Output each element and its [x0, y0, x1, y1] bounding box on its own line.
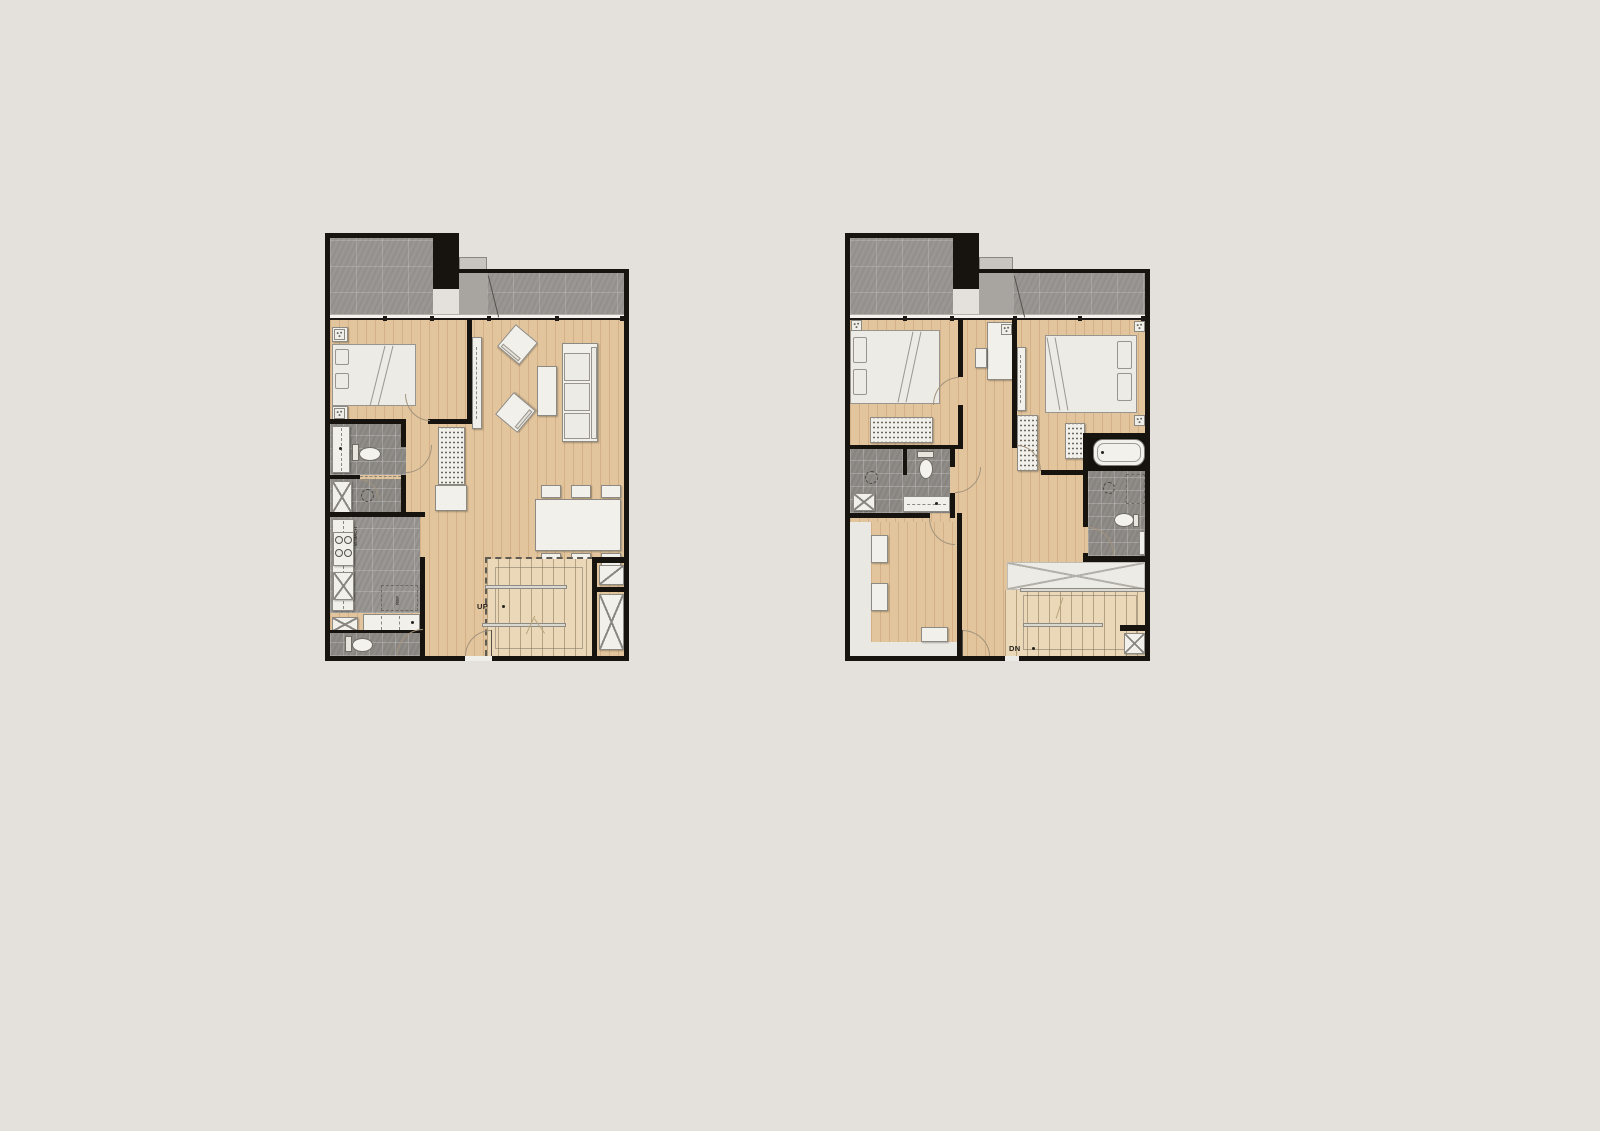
- wall: [330, 419, 405, 424]
- cabinet: [435, 485, 467, 511]
- pantry-line: [399, 616, 400, 630]
- wall: [330, 512, 425, 517]
- shaft-x: [1124, 633, 1145, 654]
- tv-console-line: [1020, 355, 1021, 403]
- wall: [953, 235, 979, 289]
- wall: [330, 475, 360, 479]
- pillow: [335, 349, 349, 365]
- upper-floor-plan: DN: [845, 227, 1155, 665]
- closet-cabinet: [871, 535, 888, 563]
- stair-rail: [485, 585, 567, 589]
- tv-console: [472, 337, 482, 429]
- toilet-icon: [1114, 513, 1134, 527]
- window-line: [330, 318, 624, 320]
- window-mullion: [620, 316, 624, 321]
- sofa-back: [591, 347, 597, 439]
- window-mullion: [430, 316, 434, 321]
- wall: [958, 319, 963, 377]
- pillow: [1117, 341, 1132, 369]
- stair-marker-dot: [502, 605, 505, 608]
- stair-rail: [1020, 588, 1145, 592]
- shaft-x: [332, 481, 352, 513]
- window-mullion: [1141, 316, 1145, 321]
- tv-console-line: [476, 347, 477, 419]
- window-mullion: [487, 316, 491, 321]
- faucet-dot: [339, 447, 342, 450]
- wall: [850, 445, 958, 449]
- wardrobe-cabinet: [975, 348, 987, 368]
- shower-glass: [904, 475, 905, 495]
- wall: [592, 563, 597, 656]
- wall: [850, 513, 930, 518]
- dining-chair: [541, 485, 561, 498]
- wall: [1012, 319, 1017, 448]
- shower-icon: [1103, 482, 1115, 494]
- window-mullion: [555, 316, 559, 321]
- pantry-line: [381, 616, 382, 630]
- closet-cabinet: [871, 583, 888, 611]
- toilet-icon: [352, 444, 359, 461]
- pillow: [853, 369, 867, 395]
- entry-vestibule: [459, 273, 487, 319]
- vanity-line: [907, 504, 946, 505]
- sofa-cushion: [564, 383, 590, 411]
- fridge-label: REF: [396, 591, 401, 605]
- plant-icon: [851, 320, 862, 331]
- lower-floor-plan: W.MACH REF UP: [325, 227, 633, 665]
- wall: [1041, 470, 1088, 475]
- dining-table: [535, 499, 621, 551]
- stove-burner: [344, 536, 352, 544]
- dining-chair: [571, 485, 591, 498]
- stove-burner: [335, 549, 343, 557]
- plant-icon: [1134, 415, 1145, 426]
- toilet-icon: [352, 638, 373, 652]
- stair-marker-dot: [1032, 647, 1035, 650]
- wall: [1145, 269, 1150, 661]
- wall: [979, 269, 1150, 273]
- wall: [950, 493, 955, 518]
- window-mullion: [903, 316, 907, 321]
- window-mullion: [950, 316, 954, 321]
- shoe-cabinet: [438, 427, 465, 485]
- balcony-floor: [1013, 273, 1145, 319]
- washing-machine-label: W.MACH: [354, 518, 359, 546]
- shaft-x: [599, 594, 624, 650]
- toilet-icon: [917, 451, 934, 458]
- tv-console: [1017, 347, 1026, 411]
- wall: [428, 419, 472, 424]
- coffee-table: [537, 366, 557, 416]
- faucet-dot: [411, 621, 414, 624]
- wall: [325, 233, 330, 661]
- dresser: [870, 417, 933, 443]
- door-leaf: [962, 630, 963, 656]
- plant-icon: [1134, 321, 1145, 332]
- shower-glass: [360, 476, 401, 478]
- closet-cabinet: [921, 627, 948, 642]
- balcony-floor: [330, 237, 433, 319]
- window-mullion: [383, 316, 387, 321]
- sofa-cushion: [564, 353, 590, 381]
- pillow: [853, 337, 867, 363]
- shower-glass: [1126, 474, 1145, 504]
- shaft-x: [853, 493, 875, 511]
- wall: [1083, 433, 1150, 438]
- bathtub-drain: [1101, 451, 1104, 454]
- stair-rail: [482, 623, 566, 627]
- shaft-x: [599, 565, 624, 585]
- entry-vestibule: [979, 273, 1013, 319]
- wall: [950, 449, 955, 467]
- sink-icon: [333, 572, 354, 600]
- pillow: [1117, 373, 1132, 401]
- toilet-icon: [359, 447, 381, 461]
- stove-burner: [335, 536, 343, 544]
- wall: [624, 269, 629, 661]
- toilet-icon: [919, 459, 933, 479]
- door-leaf: [491, 630, 492, 656]
- window-line: [850, 318, 1145, 320]
- console-cabinet: [1065, 423, 1085, 459]
- entry-threshold: [465, 656, 492, 661]
- wall: [845, 656, 1150, 661]
- wall: [459, 269, 629, 273]
- wall: [401, 475, 406, 515]
- dining-chair: [601, 485, 621, 498]
- toilet-icon: [345, 636, 352, 652]
- dn-label: DN: [1009, 645, 1020, 653]
- wall: [433, 235, 459, 289]
- stair-opening: [1005, 656, 1019, 661]
- window-mullion: [1078, 316, 1082, 321]
- shower-icon: [865, 471, 878, 484]
- pillow: [335, 373, 349, 389]
- sofa-cushion: [564, 413, 590, 439]
- wall: [1083, 433, 1088, 527]
- void-x: [1007, 562, 1145, 590]
- wall: [1083, 556, 1150, 562]
- balcony-floor: [850, 237, 953, 319]
- stair-outline: [495, 567, 583, 649]
- plant-icon: [334, 408, 345, 419]
- wall: [467, 319, 472, 419]
- wall: [401, 419, 406, 447]
- plant-icon: [1001, 324, 1012, 335]
- wall: [958, 405, 963, 449]
- up-label: UP: [477, 603, 488, 611]
- wall: [903, 449, 907, 475]
- stove-burner: [344, 549, 352, 557]
- stair-rail: [1023, 623, 1103, 627]
- plant-icon: [334, 329, 345, 340]
- balcony-floor: [487, 273, 624, 319]
- faucet-dot: [935, 502, 938, 505]
- page-background: { "canvas": {"width": 1600, "height": 11…: [0, 0, 1600, 1131]
